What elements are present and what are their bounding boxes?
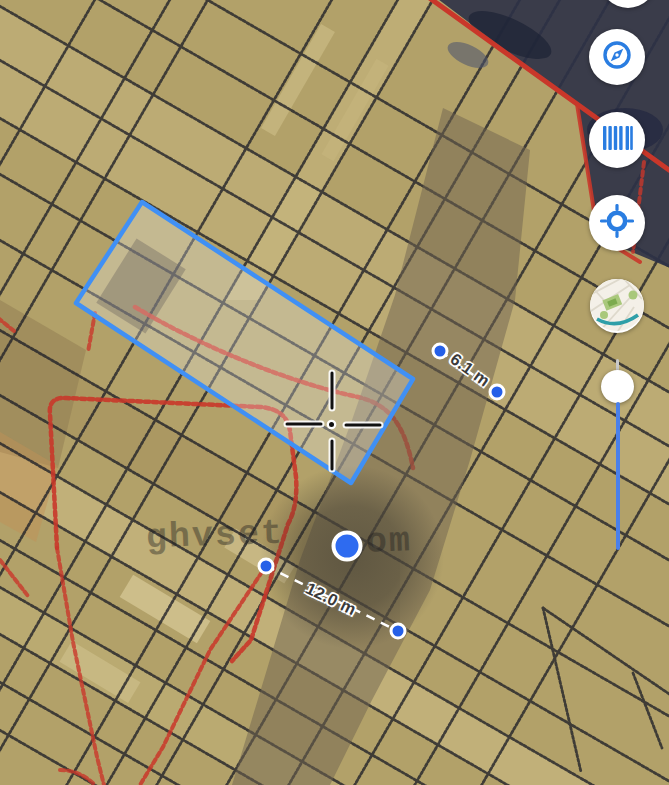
compass-button[interactable] — [589, 29, 645, 85]
measure-point-handle[interactable] — [490, 385, 504, 399]
my-location-icon — [600, 204, 634, 242]
current-location-dot — [334, 533, 361, 560]
map-canvas[interactable] — [0, 0, 669, 785]
map-type-button[interactable] — [590, 279, 644, 333]
my-location-button[interactable] — [589, 195, 645, 251]
measure-point-handle[interactable] — [433, 344, 447, 358]
measure-point-handle[interactable] — [391, 624, 405, 638]
zoom-slider-track[interactable] — [616, 402, 620, 550]
measure-point-handle[interactable] — [259, 559, 273, 573]
zoom-slider-handle[interactable] — [601, 370, 634, 403]
barcode-icon — [601, 122, 633, 158]
compass-icon — [601, 39, 633, 75]
map-layers-thumbnail — [590, 279, 644, 333]
map-screen: ghvset om 6.1 m 12.0 m — [0, 0, 669, 785]
barcode-scan-button[interactable] — [589, 112, 645, 168]
